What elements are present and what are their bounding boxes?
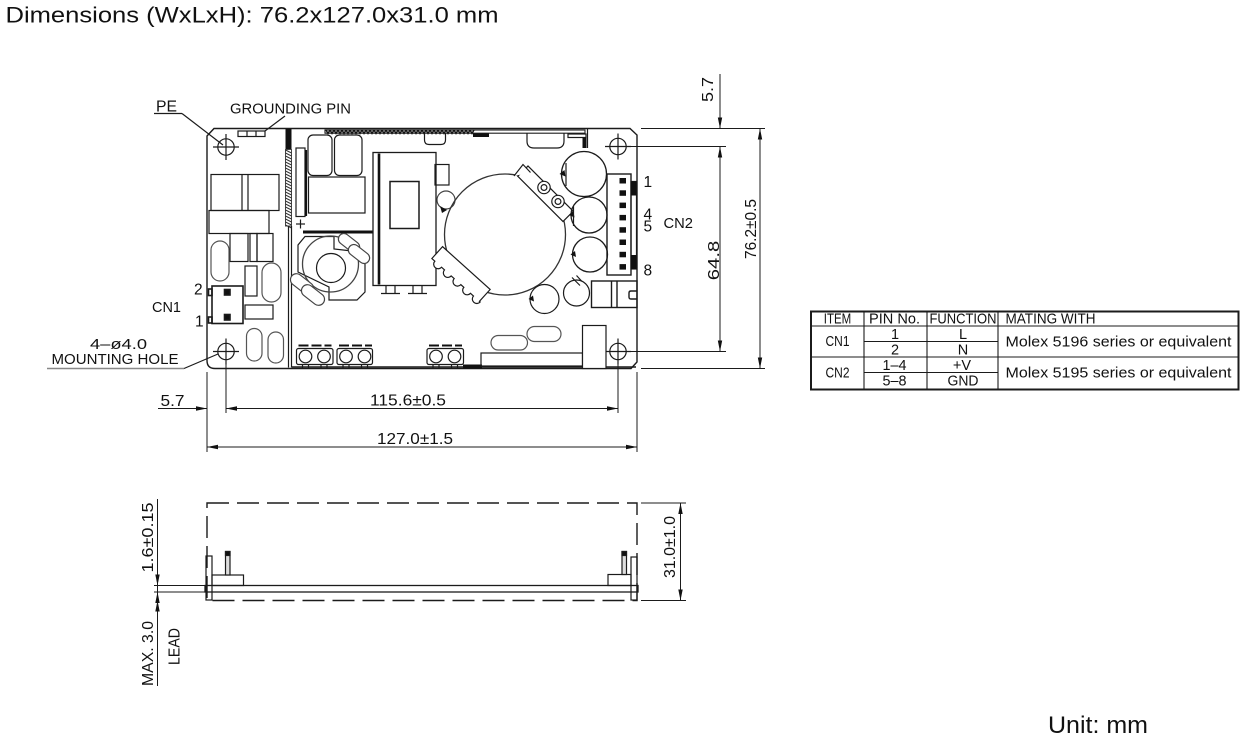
svg-text:LEAD: LEAD <box>167 628 184 665</box>
svg-text:+V: +V <box>953 358 971 374</box>
svg-text:5: 5 <box>644 219 653 236</box>
svg-text:8: 8 <box>644 263 653 280</box>
svg-text:76.2±0.5: 76.2±0.5 <box>743 199 760 259</box>
svg-text:MOUNTING HOLE: MOUNTING HOLE <box>52 351 179 368</box>
svg-text:1.6±0.15: 1.6±0.15 <box>140 503 157 573</box>
svg-text:1–4: 1–4 <box>883 358 907 374</box>
svg-text:N: N <box>958 343 968 359</box>
svg-text:127.0±1.5: 127.0±1.5 <box>377 431 453 448</box>
svg-text:31.0±1.0: 31.0±1.0 <box>662 516 679 578</box>
svg-text:CN1: CN1 <box>152 299 181 316</box>
svg-text:5–8: 5–8 <box>883 374 907 390</box>
svg-text:ITEM: ITEM <box>824 312 852 328</box>
svg-text:Dimensions (WxLxH): 76.2x127.0: Dimensions (WxLxH): 76.2x127.0x31.0 mm <box>6 3 499 28</box>
svg-text:2: 2 <box>891 343 899 359</box>
svg-text:5.7: 5.7 <box>700 77 717 102</box>
svg-text:115.6±0.5: 115.6±0.5 <box>370 393 446 410</box>
svg-text:5.7: 5.7 <box>161 393 185 410</box>
svg-text:FUNCTION: FUNCTION <box>930 312 997 328</box>
svg-text:MAX. 3.0: MAX. 3.0 <box>140 621 157 686</box>
svg-text:PIN No.: PIN No. <box>869 312 920 328</box>
svg-text:MATING WITH: MATING WITH <box>1006 312 1096 328</box>
svg-text:Unit: mm: Unit: mm <box>1048 712 1148 739</box>
svg-text:CN2: CN2 <box>664 215 694 232</box>
svg-text:1: 1 <box>891 327 899 343</box>
svg-text:GROUNDING PIN: GROUNDING PIN <box>230 101 351 118</box>
svg-text:GND: GND <box>948 374 979 390</box>
svg-text:CN1: CN1 <box>826 334 850 350</box>
svg-text:1: 1 <box>644 174 653 191</box>
svg-text:1: 1 <box>195 314 204 331</box>
svg-text:Molex 5195 series or equiv: Molex 5195 series or equivalent <box>1006 366 1232 382</box>
svg-text:2: 2 <box>194 282 203 299</box>
svg-text:CN2: CN2 <box>826 366 850 382</box>
svg-text:L: L <box>959 327 967 343</box>
svg-text:Molex 5196 series or equiv: Molex 5196 series or equivalent <box>1006 335 1232 351</box>
